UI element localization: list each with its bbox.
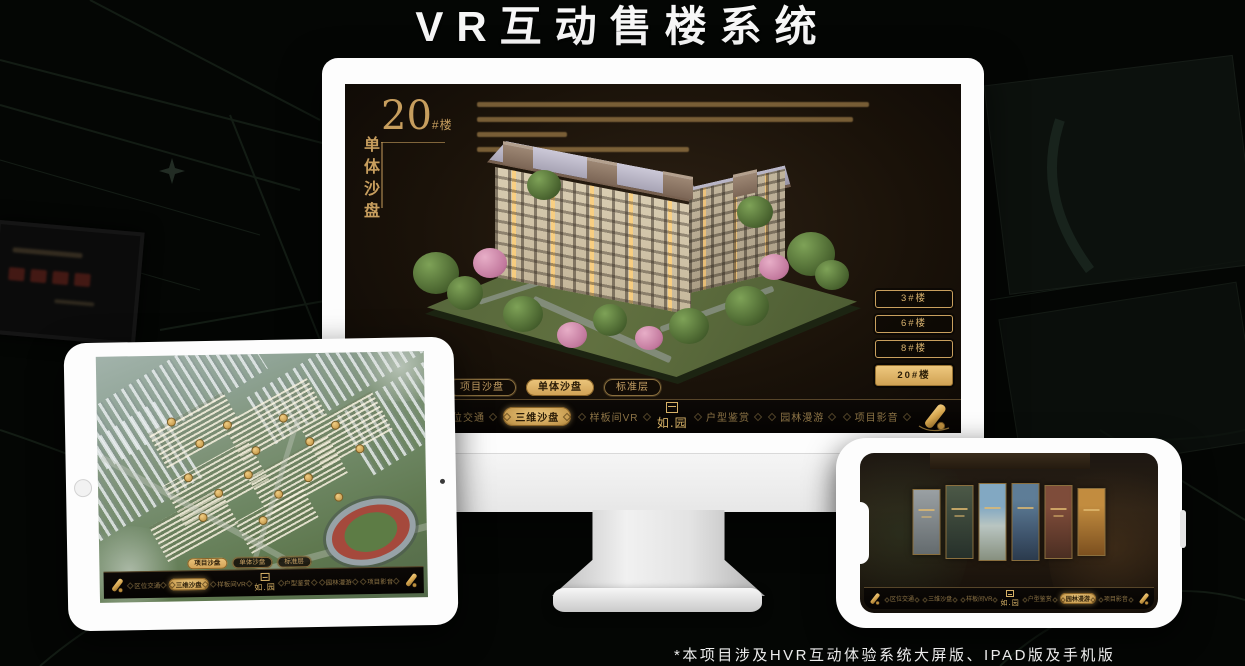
tree-blob xyxy=(669,308,709,344)
panel-caption-bar xyxy=(1018,507,1034,509)
scroll-icon[interactable] xyxy=(108,574,126,596)
building-badge[interactable] xyxy=(214,489,223,498)
panel-caption-bar xyxy=(985,507,1001,509)
phone-power-button[interactable] xyxy=(1180,510,1186,548)
tree-blob xyxy=(815,260,849,290)
tablet-nav-project-media[interactable]: 项目影音 xyxy=(360,575,400,588)
scroll-icon[interactable] xyxy=(401,569,419,591)
tree-blob xyxy=(737,196,773,228)
tablet-home-button[interactable] xyxy=(74,479,92,497)
blossom-blob xyxy=(473,248,507,278)
tablet-bottom-navbar: 区位交通 三维沙盘 样板间VR 如.园 户型鉴赏 园林漫游 项目影音 xyxy=(104,566,424,599)
tablet-tab-standard-floor[interactable]: 标准层 xyxy=(277,556,311,568)
tree-blob xyxy=(503,296,543,332)
scroll-icon[interactable] xyxy=(917,401,951,433)
subtitle-caption-bar xyxy=(381,142,383,208)
building-badge[interactable] xyxy=(184,473,193,482)
nav-item-floorplan-gallery[interactable]: 户型鉴赏 xyxy=(694,407,762,426)
tablet-tab-group: 项目沙盘 单体沙盘 标准层 xyxy=(187,556,311,569)
tree-blob xyxy=(527,170,561,200)
tablet-nav-floorplan-gallery[interactable]: 户型鉴赏 xyxy=(277,576,317,589)
building-badge[interactable] xyxy=(259,516,268,525)
scene-gallery xyxy=(913,483,1106,561)
plaque-red-char xyxy=(74,273,91,287)
floor-button-6[interactable]: 6#楼 xyxy=(875,315,953,333)
nav-item-project-media[interactable]: 项目影音 xyxy=(843,407,911,426)
plaque-text-bar xyxy=(12,247,82,258)
scroll-icon[interactable] xyxy=(867,590,882,608)
building-badge[interactable] xyxy=(304,473,313,482)
compass-star-icon xyxy=(159,158,185,184)
panel-caption-bar xyxy=(921,516,931,518)
building-badge[interactable] xyxy=(279,414,288,423)
phone-nav-floorplan-gallery[interactable]: 户型鉴赏 xyxy=(1022,593,1058,604)
logo-seal-icon xyxy=(260,573,269,581)
logo-text: 如.园 xyxy=(254,582,276,593)
tab-project-sandbox[interactable]: 项目沙盘 xyxy=(448,379,516,396)
phone-nav-location-traffic[interactable]: 区位交通 xyxy=(884,593,920,604)
blossom-blob xyxy=(557,322,587,348)
building-badge[interactable] xyxy=(355,444,364,453)
panel-caption-bar xyxy=(952,508,968,510)
phone-nav-project-media[interactable]: 项目影音 xyxy=(1098,593,1134,604)
tablet-nav-model-room-vr[interactable]: 样板间VR xyxy=(210,577,253,590)
plaque-red-char xyxy=(30,269,47,283)
plaque-red-char xyxy=(52,271,69,285)
footnote: *本项目涉及HVR互动体验系统大屏版、IPAD版及手机版 xyxy=(674,644,1115,665)
phone-device: 区位交通 三维沙盘 样板间VR 如.园 户型鉴赏 园林漫游 项目影音 xyxy=(836,438,1182,628)
phone-bottom-navbar: 区位交通 三维沙盘 样板间VR 如.园 户型鉴赏 园林漫游 项目影音 xyxy=(864,587,1154,609)
tablet-tab-single-sandbox[interactable]: 单体沙盘 xyxy=(232,557,272,569)
tablet-nav-location-traffic[interactable]: 区位交通 xyxy=(127,579,167,592)
phone-screen: 区位交通 三维沙盘 样板间VR 如.园 户型鉴赏 园林漫游 项目影音 xyxy=(860,453,1158,613)
gallery-panel[interactable] xyxy=(1045,485,1073,559)
phone-notch xyxy=(860,502,869,564)
blossom-blob xyxy=(635,326,663,350)
tablet-device: 项目沙盘 单体沙盘 标准层 区位交通 三维沙盘 样板间VR 如.园 户型鉴赏 园… xyxy=(64,337,459,632)
text-line-bar xyxy=(477,117,853,122)
gallery-panel[interactable] xyxy=(913,489,941,555)
scroll-icon[interactable] xyxy=(1136,590,1151,608)
tab-single-sandbox[interactable]: 单体沙盘 xyxy=(526,379,594,396)
logo-seal-icon xyxy=(1006,590,1014,597)
tablet-nav-garden-roam[interactable]: 园林漫游 xyxy=(319,575,359,588)
floor-button-group: 3#楼 6#楼 8#楼 20#楼 xyxy=(875,290,953,386)
blossom-blob xyxy=(759,254,789,280)
phone-nav-garden-roam[interactable]: 园林漫游 xyxy=(1060,593,1096,604)
tablet-brand-logo: 如.园 xyxy=(254,573,276,593)
phone-nav-3d-sandbox[interactable]: 三维沙盘 xyxy=(922,593,958,604)
logo-text: 如.园 xyxy=(1001,598,1020,608)
phone-nav-model-room-vr[interactable]: 样板间VR xyxy=(960,593,998,604)
plaque-red-char xyxy=(8,267,25,281)
gallery-panel[interactable] xyxy=(946,485,974,559)
tab-standard-floor[interactable]: 标准层 xyxy=(604,379,661,396)
building-badge[interactable] xyxy=(244,470,253,479)
building-label: 20#楼 xyxy=(381,94,453,138)
logo-text: 如.园 xyxy=(657,414,688,431)
tablet-nav-3d-sandbox[interactable]: 三维沙盘 xyxy=(169,578,209,591)
panel-caption-bar xyxy=(919,509,935,511)
gallery-panel[interactable] xyxy=(1012,483,1040,561)
building-badge[interactable] xyxy=(251,446,260,455)
gate-lintel xyxy=(930,453,1090,469)
desktop-tab-group: 项目沙盘 单体沙盘 标准层 xyxy=(448,379,661,396)
building-number-suffix: #楼 xyxy=(432,118,453,132)
poster-stage: VR互动售楼系统 20#楼 单体沙盘 xyxy=(0,0,1245,666)
phone-brand-logo: 如.园 xyxy=(1001,590,1020,608)
panel-caption-bar xyxy=(1051,508,1067,510)
mist-blob xyxy=(345,351,428,402)
logo-seal-icon xyxy=(666,402,678,413)
building-badge[interactable] xyxy=(198,513,207,522)
tablet-screen: 项目沙盘 单体沙盘 标准层 区位交通 三维沙盘 样板间VR 如.园 户型鉴赏 园… xyxy=(96,351,428,603)
text-line-bar xyxy=(477,102,869,107)
tree-blob xyxy=(725,286,769,326)
plaque-text-bar xyxy=(54,299,94,306)
building-badge[interactable] xyxy=(223,420,232,429)
tablet-camera-dot xyxy=(440,479,445,484)
panel-caption-bar xyxy=(1053,515,1063,517)
stadium xyxy=(317,487,424,576)
background-award-plaque xyxy=(0,220,145,346)
floor-button-3[interactable]: 3#楼 xyxy=(875,290,953,308)
monitor-stand-base xyxy=(553,588,762,612)
nav-item-3d-sandbox[interactable]: 三维沙盘 xyxy=(503,407,571,426)
page-title: VR互动售楼系统 xyxy=(0,0,1245,54)
panel-caption-bar xyxy=(1084,509,1100,511)
floor-button-20[interactable]: 20#楼 xyxy=(875,365,953,386)
building-subtitle: 单体沙盘 xyxy=(357,136,381,224)
tablet-tab-project-sandbox[interactable]: 项目沙盘 xyxy=(187,558,227,570)
panel-caption-bar xyxy=(954,515,964,517)
building-badge[interactable] xyxy=(334,493,343,502)
building-badge[interactable] xyxy=(274,490,283,499)
building-model[interactable] xyxy=(407,136,877,380)
gallery-panel[interactable] xyxy=(979,483,1007,561)
building-number: 20 xyxy=(381,93,432,139)
brand-logo: 如.园 xyxy=(657,402,688,431)
tree-blob xyxy=(593,304,627,336)
nav-item-garden-roam[interactable]: 园林漫游 xyxy=(768,407,836,426)
gallery-panel[interactable] xyxy=(1078,488,1106,556)
nav-item-model-room-vr[interactable]: 样板间VR xyxy=(578,407,651,426)
tree-blob xyxy=(447,276,483,310)
floor-button-8[interactable]: 8#楼 xyxy=(875,340,953,358)
